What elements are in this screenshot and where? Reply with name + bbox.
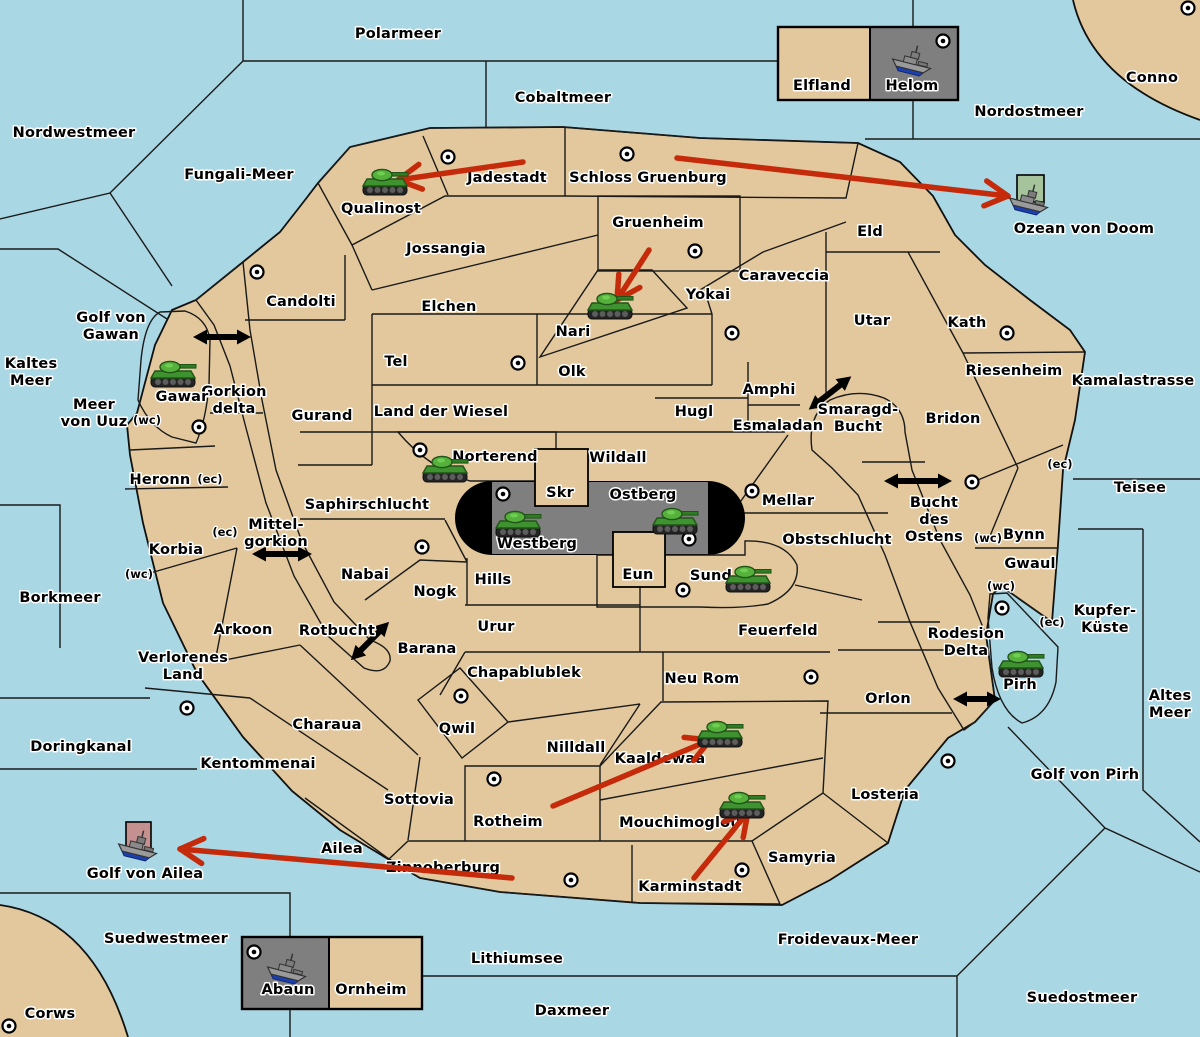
territory-label-suedwestmeer[interactable]: Suedwestmeer <box>104 931 229 947</box>
territory-label-mellar[interactable]: Mellar <box>762 493 815 509</box>
territory-label-daxmeer[interactable]: Daxmeer <box>535 1003 610 1019</box>
coast-marker-wc: (wc) <box>125 567 153 581</box>
city-icon <box>488 773 501 786</box>
territory-label-urur[interactable]: Urur <box>477 619 515 635</box>
territory-label-sund[interactable]: Sund <box>690 568 732 584</box>
city-icon <box>193 421 206 434</box>
territory-label-samyria[interactable]: Samyria <box>768 850 836 866</box>
city-icon <box>996 602 1009 615</box>
coast-marker-ec: (ec) <box>197 472 222 486</box>
territory-label-eld[interactable]: Eld <box>857 224 883 240</box>
territory-label-arkoon[interactable]: Arkoon <box>213 622 272 638</box>
city-icon <box>746 485 759 498</box>
city-icon <box>414 444 427 457</box>
territory-label-kath[interactable]: Kath <box>947 315 986 331</box>
territory-label-sottovia[interactable]: Sottovia <box>384 792 454 808</box>
city-icon <box>621 148 634 161</box>
coast-marker-ec: (ec) <box>1039 615 1064 629</box>
territory-label-teisee[interactable]: Teisee <box>1114 480 1166 496</box>
territory-label-riesenheim[interactable]: Riesenheim <box>966 363 1063 379</box>
city-icon <box>248 946 261 959</box>
city-icon <box>1001 327 1014 340</box>
city-icon <box>966 476 979 489</box>
city-icon <box>736 864 749 877</box>
territory-label-gruenheim[interactable]: Gruenheim <box>612 215 704 231</box>
territory-label-land-der-wiesel[interactable]: Land der Wiesel <box>374 404 508 420</box>
territory-label-lithiumsee[interactable]: Lithiumsee <box>471 951 563 967</box>
territory-label-charaua[interactable]: Charaua <box>292 717 361 733</box>
territory-label-kamalastrasse[interactable]: Kamalastrasse <box>1072 373 1195 389</box>
territory-label-helom[interactable]: Helom <box>885 78 938 94</box>
territory-label-rotheim[interactable]: Rotheim <box>473 814 543 830</box>
territory-label-doringkanal[interactable]: Doringkanal <box>30 739 132 755</box>
territory-label-esmaladan[interactable]: Esmaladan <box>733 418 823 434</box>
territory-label-qualinost[interactable]: Qualinost <box>341 201 421 217</box>
territory-label-obstschlucht[interactable]: Obstschlucht <box>782 532 891 548</box>
territory-label-mittelgorkion[interactable]: Mittel-gorkion <box>244 517 308 550</box>
territory-label-tel[interactable]: Tel <box>384 354 407 370</box>
city-icon <box>689 245 702 258</box>
territory-label-chapablublek[interactable]: Chapablublek <box>467 665 581 681</box>
territory-label-fungali-meer[interactable]: Fungali-Meer <box>184 167 294 183</box>
territory-label-neu-rom[interactable]: Neu Rom <box>665 671 740 687</box>
territory-label-nogk[interactable]: Nogk <box>414 584 457 600</box>
territory-label-ailea[interactable]: Ailea <box>321 841 363 857</box>
city-icon <box>181 702 194 715</box>
territory-label-schloss-gruenburg[interactable]: Schloss Gruenburg <box>569 170 727 186</box>
territory-label-feuerfeld[interactable]: Feuerfeld <box>738 623 818 639</box>
territory-label-nabai[interactable]: Nabai <box>341 567 389 583</box>
territory-label-skr[interactable]: Skr <box>546 485 574 501</box>
territory-label-pirh[interactable]: Pirh <box>1003 677 1037 693</box>
territory-label-altes-meer[interactable]: AltesMeer <box>1149 688 1192 721</box>
city-icon <box>726 327 739 340</box>
city-icon <box>416 541 429 554</box>
territory-label-wildall[interactable]: Wildall <box>589 450 646 466</box>
territory-label-saphirschlucht[interactable]: Saphirschlucht <box>305 497 430 513</box>
territory-label-utar[interactable]: Utar <box>854 313 891 329</box>
city-icon <box>251 266 264 279</box>
territory-label-gwaul[interactable]: Gwaul <box>1004 556 1055 572</box>
city-icon <box>3 1020 16 1033</box>
territory-label-qwil[interactable]: Qwil <box>439 721 475 737</box>
territory-label-conno[interactable]: Conno <box>1126 70 1178 86</box>
territory-label-kupfer-k-ste[interactable]: Kupfer-Küste <box>1074 603 1136 636</box>
coast-marker-wc: (wc) <box>133 413 161 427</box>
city-icon <box>565 874 578 887</box>
city-icon <box>455 690 468 703</box>
city-icon <box>512 357 525 370</box>
territory-label-yokai[interactable]: Yokai <box>685 287 731 303</box>
coast-marker-ec: (ec) <box>212 525 237 539</box>
territory-label-borkmeer[interactable]: Borkmeer <box>19 590 101 606</box>
territory-label-karminstadt[interactable]: Karminstadt <box>638 879 741 895</box>
city-icon <box>942 755 955 768</box>
territory-label-golf-von-pirh[interactable]: Golf von Pirh <box>1031 767 1140 783</box>
territory-label-westberg[interactable]: Westberg <box>497 536 577 552</box>
territory-label-polarmeer[interactable]: Polarmeer <box>355 26 442 42</box>
territory-label-kaltes-meer[interactable]: KaltesMeer <box>5 356 58 389</box>
city-icon <box>1182 2 1195 15</box>
coast-marker-wc: (wc) <box>974 531 1002 545</box>
territory-label-bridon[interactable]: Bridon <box>925 411 980 427</box>
territory-label-heronn[interactable]: Heronn <box>130 472 191 488</box>
city-icon <box>937 35 950 48</box>
territory-label-abaun[interactable]: Abaun <box>261 982 314 998</box>
territory-label-korbia[interactable]: Korbia <box>149 542 203 558</box>
territory-label-elfland[interactable]: Elfland <box>793 78 851 94</box>
territory-label-golf-von-gawan[interactable]: Golf vonGawan <box>76 310 146 343</box>
territory-label-hills[interactable]: Hills <box>475 572 512 588</box>
territory-label-eun[interactable]: Eun <box>622 567 653 583</box>
territory-label-gawar[interactable]: Gawar <box>155 389 209 405</box>
territory-label-gurand[interactable]: Gurand <box>291 408 352 424</box>
territory-label-rotbucht[interactable]: Rotbucht <box>299 623 375 639</box>
territory-label-kentommenai[interactable]: Kentommenai <box>200 756 315 772</box>
territory-label-froidevaux-meer[interactable]: Froidevaux-Meer <box>778 932 919 948</box>
city-icon <box>442 151 455 164</box>
territory-label-jossangia[interactable]: Jossangia <box>405 241 486 257</box>
territory-label-ozean-von-doom[interactable]: Ozean von Doom <box>1014 221 1154 237</box>
territory-label-golf-von-ailea[interactable]: Golf von Ailea <box>87 866 204 882</box>
city-icon <box>677 584 690 597</box>
territory-label-cobaltmeer[interactable]: Cobaltmeer <box>515 90 612 106</box>
territory-label-amphi[interactable]: Amphi <box>742 382 795 398</box>
territory-label-hugl[interactable]: Hugl <box>675 404 714 420</box>
territory-label-suedostmeer[interactable]: Suedostmeer <box>1027 990 1138 1006</box>
territory-label-orlon[interactable]: Orlon <box>865 691 911 707</box>
territory-label-candolti[interactable]: Candolti <box>266 294 336 310</box>
territory-label-bynn[interactable]: Bynn <box>1003 527 1045 543</box>
territory-label-caraveccia[interactable]: Caraveccia <box>739 268 830 284</box>
territory-label-ornheim[interactable]: Ornheim <box>335 982 406 998</box>
city-icon <box>805 671 818 684</box>
territory-label-barana[interactable]: Barana <box>397 641 456 657</box>
territory-label-nilldall[interactable]: Nilldall <box>547 740 606 756</box>
territory-label-olk[interactable]: Olk <box>558 364 586 380</box>
city-icon <box>497 488 510 501</box>
territory-label-nordwestmeer[interactable]: Nordwestmeer <box>13 125 136 141</box>
coast-marker-ec: (ec) <box>1047 457 1072 471</box>
territory-label-nari[interactable]: Nari <box>556 324 591 340</box>
territory-label-elchen[interactable]: Elchen <box>421 299 476 315</box>
territory-label-ostberg[interactable]: Ostberg <box>609 487 676 503</box>
territory-label-losteria[interactable]: Losteria <box>851 787 919 803</box>
abaun-ornheim-box <box>242 937 422 1009</box>
game-map: PolarmeerCobaltmeerNordostmeerNordwestme… <box>0 0 1200 1037</box>
territory-label-corws[interactable]: Corws <box>25 1006 76 1022</box>
territory-label-jadestadt[interactable]: Jadestadt <box>466 170 547 186</box>
coast-marker-wc: (wc) <box>987 579 1015 593</box>
territory-label-nordostmeer[interactable]: Nordostmeer <box>974 104 1084 120</box>
